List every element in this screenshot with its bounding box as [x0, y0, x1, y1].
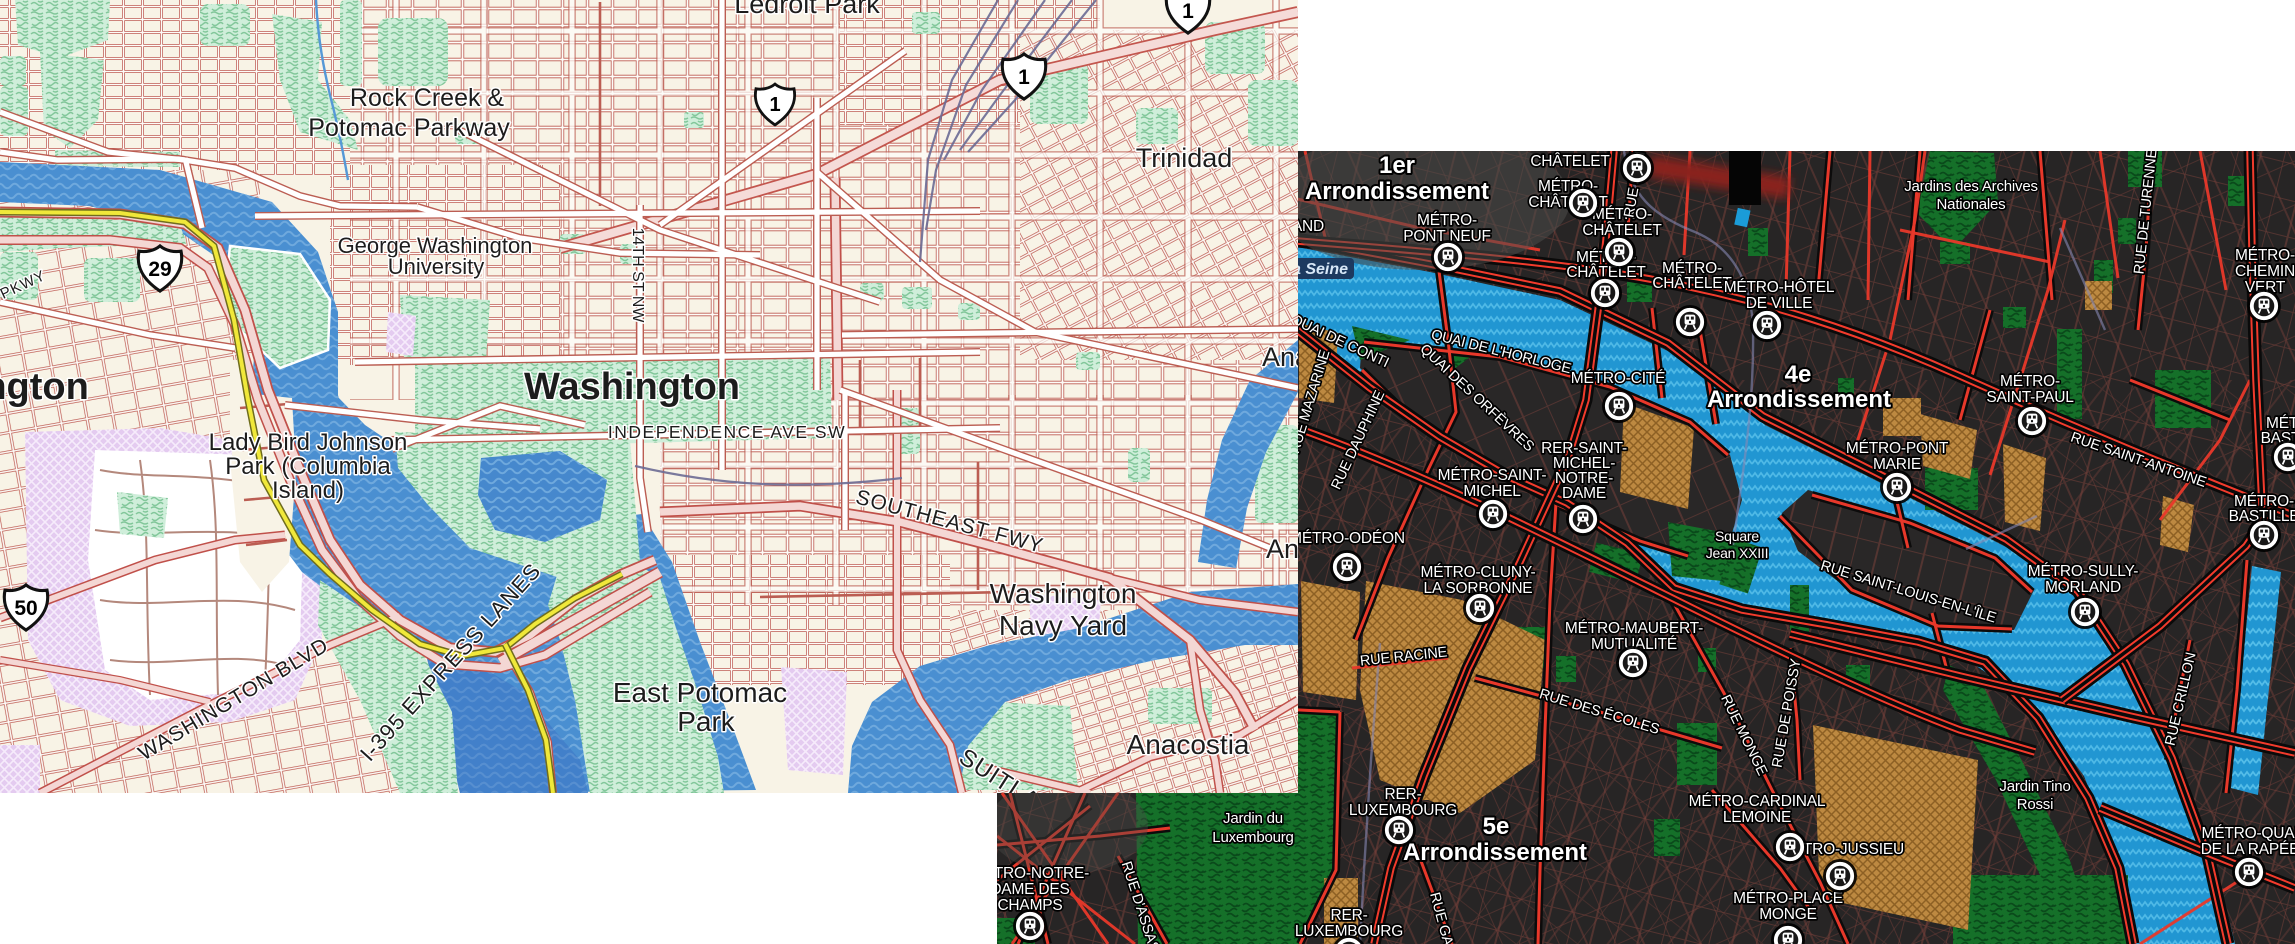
- svg-text:Arrondissement: Arrondissement: [1707, 386, 1891, 413]
- svg-text:Anac: Anac: [1266, 534, 1298, 564]
- svg-text:5e: 5e: [1483, 813, 1510, 840]
- svg-text:Navy Yard: Navy Yard: [999, 610, 1127, 641]
- svg-text:Arrondissement: Arrondissement: [1403, 839, 1587, 866]
- svg-text:LEMOINE: LEMOINE: [1723, 809, 1791, 826]
- svg-text:a Seine: a Seine: [1292, 261, 1348, 278]
- svg-text:Luxembourg: Luxembourg: [1212, 829, 1293, 846]
- svg-text:14TH ST NW: 14TH ST NW: [629, 228, 646, 324]
- svg-text:CHEMIN: CHEMIN: [2235, 263, 2295, 280]
- svg-text:DE VILLE: DE VILLE: [1746, 295, 1812, 312]
- svg-text:Arrondissement: Arrondissement: [1305, 178, 1489, 205]
- svg-text:Ledroit Park: Ledroit Park: [734, 0, 880, 19]
- svg-text:Jardin du: Jardin du: [1223, 810, 1283, 827]
- svg-text:Rossi: Rossi: [2017, 796, 2054, 813]
- svg-text:MÉTRO-CITÉ: MÉTRO-CITÉ: [1571, 370, 1665, 387]
- svg-text:1: 1: [1018, 66, 1030, 89]
- svg-text:1: 1: [769, 94, 780, 116]
- svg-text:MÉTRO-NOTRE-: MÉTRO-NOTRE-: [997, 865, 1089, 882]
- svg-text:Jardin Tino: Jardin Tino: [1999, 778, 2070, 795]
- svg-text:MONGE: MONGE: [1759, 906, 1817, 923]
- svg-text:29: 29: [148, 258, 171, 281]
- svg-text:MÉTRO-PONT: MÉTRO-PONT: [1846, 440, 1949, 457]
- svg-text:Anacostia: Anacostia: [1127, 729, 1250, 760]
- svg-text:RER-: RER-: [1384, 786, 1421, 803]
- svg-text:Park: Park: [677, 706, 736, 737]
- svg-text:Washington: Washington: [524, 366, 740, 408]
- svg-text:MÉTRO-MAUBERT-: MÉTRO-MAUBERT-: [1565, 620, 1703, 637]
- svg-text:Jardins des Archives: Jardins des Archives: [1904, 178, 2038, 195]
- svg-text:MÉTRO-: MÉTRO-: [2000, 373, 2060, 390]
- svg-text:Nationales: Nationales: [1937, 196, 2006, 213]
- svg-text:CHÂTELET: CHÂTELET: [1652, 275, 1732, 292]
- svg-text:MÉTRO-ODÉON: MÉTRO-ODÉON: [1289, 530, 1405, 547]
- svg-text:MÉTRO-HÔTEL: MÉTRO-HÔTEL: [1724, 279, 1835, 296]
- svg-text:Park (Columbia: Park (Columbia: [225, 453, 391, 480]
- svg-text:East Potomac: East Potomac: [613, 677, 787, 708]
- svg-text:MÉTRO-: MÉTRO-: [1417, 212, 1477, 229]
- svg-text:CHÂTELET: CHÂTELET: [1530, 153, 1610, 170]
- svg-text:Jean XXIII: Jean XXIII: [1706, 545, 1769, 561]
- svg-text:DAME: DAME: [1562, 485, 1606, 502]
- svg-text:SAINT-PAUL: SAINT-PAUL: [1986, 389, 2074, 406]
- svg-text:MÉTRO-SAINT-: MÉTRO-SAINT-: [1438, 467, 1547, 484]
- svg-text:Potomac Parkway: Potomac Parkway: [308, 114, 510, 142]
- svg-text:MÉTRO-CLUNY-: MÉTRO-CLUNY-: [1420, 564, 1535, 581]
- svg-text:1: 1: [1182, 0, 1194, 23]
- svg-text:4e: 4e: [1785, 361, 1812, 388]
- svg-text:DAME DES: DAME DES: [997, 881, 1070, 898]
- svg-text:Trinidad: Trinidad: [1136, 143, 1233, 173]
- svg-text:Ana: Ana: [1262, 342, 1298, 372]
- svg-text:Arlington: Arlington: [0, 366, 89, 408]
- svg-text:Island): Island): [272, 477, 344, 504]
- svg-text:INDEPENDENCE AVE SW: INDEPENDENCE AVE SW: [608, 422, 846, 442]
- svg-text:RER-: RER-: [1330, 907, 1367, 924]
- svg-text:1er: 1er: [1379, 152, 1415, 179]
- svg-text:Washington: Washington: [990, 578, 1137, 609]
- svg-text:University: University: [388, 254, 485, 279]
- svg-text:50: 50: [14, 597, 37, 620]
- svg-text:MÉTRO-QUAI: MÉTRO-QUAI: [2201, 825, 2295, 842]
- svg-text:Rock Creek &: Rock Creek &: [350, 84, 505, 112]
- svg-text:MÉTRO-: MÉTRO-: [2235, 247, 2295, 264]
- svg-text:MÉTRO-CARDINAL: MÉTRO-CARDINAL: [1689, 793, 1826, 810]
- svg-text:Lady Bird Johnson: Lady Bird Johnson: [209, 429, 408, 456]
- svg-text:MÉTRO-PLACE: MÉTRO-PLACE: [1733, 890, 1843, 907]
- svg-text:MÉTRO-SULLY-: MÉTRO-SULLY-: [2028, 563, 2138, 580]
- svg-text:MORLAND: MORLAND: [2045, 579, 2121, 596]
- svg-text:Square: Square: [1715, 528, 1759, 544]
